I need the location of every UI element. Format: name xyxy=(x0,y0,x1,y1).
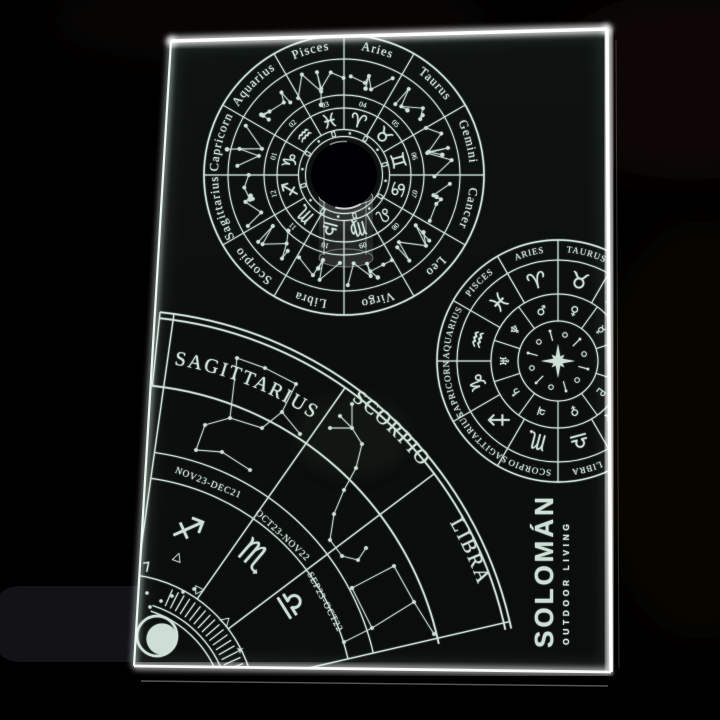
decor-glyph: ✶ xyxy=(235,644,244,657)
sagittarius-line-star xyxy=(194,448,198,452)
scorpio-line-star xyxy=(360,442,364,446)
planet-glyph: ♅ xyxy=(498,356,512,367)
scorpio-line-star xyxy=(364,546,368,550)
brand-tagline: OUTDOOR LIVING xyxy=(561,520,571,645)
libra-line-star xyxy=(392,564,396,568)
tiny-ring-mark xyxy=(368,207,370,209)
sagittarius-line-star xyxy=(260,426,264,430)
decor-dot xyxy=(181,590,184,593)
zodiac-panel-photo: Aries04♈Taurus05♉Gemini06♊Cancer07♋Leo08… xyxy=(0,0,720,720)
brand-name: SOLOMÁN xyxy=(529,494,559,648)
sagittarius-line-star xyxy=(203,423,207,427)
tiny-ring-mark xyxy=(337,215,339,217)
sagittarius-line-star xyxy=(220,450,224,454)
tiny-ring-mark xyxy=(309,199,311,201)
star-ring-arrow-tip xyxy=(587,368,590,371)
scorpio-star xyxy=(350,402,354,406)
corner-hotspot-top-right xyxy=(602,24,612,34)
star-ring-arrow-tip xyxy=(565,390,568,393)
scorpio-line-star xyxy=(328,538,332,542)
tiny-ring-mark xyxy=(384,180,386,182)
sagittarius-star xyxy=(298,432,302,436)
star-center xyxy=(556,359,560,363)
sagittarius-line-star xyxy=(263,366,267,370)
decor-dot xyxy=(148,605,151,608)
tiny-ring-mark xyxy=(376,149,378,151)
sagittarius-line-star xyxy=(248,468,252,472)
libra-star xyxy=(432,632,436,636)
star-ring-arrow-tip xyxy=(549,330,552,333)
star-ring-arrow-tip xyxy=(535,382,538,385)
sagittarius-line-star xyxy=(294,382,298,386)
scorpio-line-star xyxy=(356,558,360,562)
scorpio-line-star xyxy=(340,554,344,558)
decor-dot xyxy=(170,594,173,597)
tiny-ring-mark xyxy=(349,132,351,134)
scorpio-line-star xyxy=(354,466,358,470)
scorpio-star xyxy=(328,426,332,430)
star-ring-arrow-tip xyxy=(579,338,582,341)
scorpio-line-star xyxy=(342,488,346,492)
scorpio-star xyxy=(338,414,342,418)
corner-hotspot-top-left xyxy=(166,36,176,46)
photo-scene: Aries04♈Taurus05♉Gemini06♊Cancer07♋Leo08… xyxy=(0,0,720,720)
libra-star xyxy=(342,640,346,644)
star-ring-arrow-tip xyxy=(527,352,530,355)
lamp-hole xyxy=(311,142,377,208)
decor-glyph: ▷ xyxy=(195,582,205,596)
scorpio-line-star xyxy=(332,512,336,516)
decor-dot xyxy=(145,591,148,594)
moon-disc xyxy=(147,624,178,655)
tiny-ring-mark xyxy=(301,168,303,170)
decor-dot xyxy=(159,599,162,602)
libra-line-star xyxy=(350,586,354,590)
tiny-ring-mark xyxy=(318,140,320,142)
